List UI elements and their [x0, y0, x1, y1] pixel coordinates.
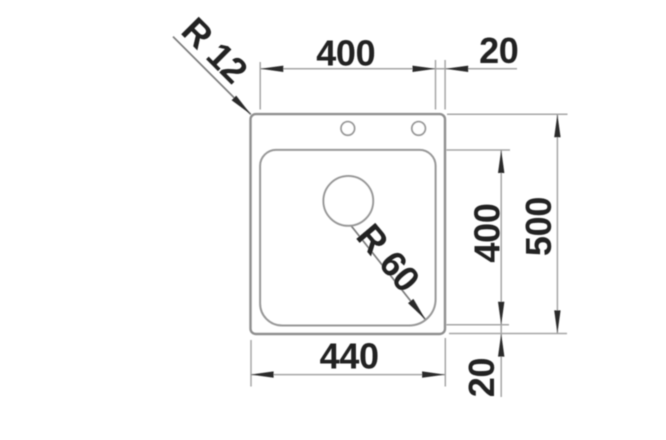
svg-text:400: 400: [467, 203, 508, 262]
svg-text:20: 20: [461, 358, 502, 397]
svg-text:R 60: R 60: [349, 216, 429, 300]
svg-text:500: 500: [518, 197, 559, 256]
svg-text:440: 440: [320, 336, 379, 377]
svg-text:R 12: R 12: [174, 9, 256, 91]
svg-text:400: 400: [316, 33, 375, 74]
svg-text:20: 20: [479, 30, 518, 71]
